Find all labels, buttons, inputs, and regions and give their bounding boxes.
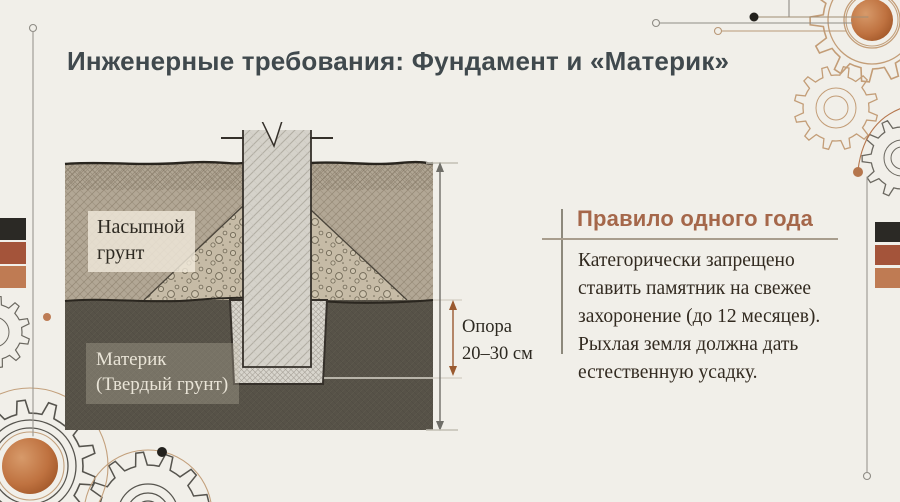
swatch-tan — [0, 266, 26, 288]
swatch-rust — [875, 245, 900, 265]
swatch-tan — [875, 268, 900, 288]
panel-horizontal-rule — [542, 238, 838, 240]
fill-soil-label: Насыпной грунт — [88, 211, 195, 272]
swatch-dark — [875, 222, 900, 242]
rule-body-line: Рыхлая земля должна дать — [578, 331, 820, 359]
bedrock-label: Материк (Твердый грунт) — [86, 343, 239, 404]
circuit-dot — [853, 167, 863, 177]
panel-vertical-rule — [561, 209, 563, 354]
slide-canvas: Инженерные требования: Фундамент и «Мате… — [0, 0, 900, 502]
page-title: Инженерные требования: Фундамент и «Мате… — [67, 46, 729, 77]
rule-body-line: естественную усадку. — [578, 359, 820, 387]
circuit-node — [715, 28, 722, 35]
circuit-dot — [750, 13, 759, 22]
rule-body-line: ставить памятник на свежее — [578, 275, 820, 303]
gear-icon — [862, 118, 900, 198]
bedrock-label-line2: (Твердый грунт) — [96, 372, 228, 397]
circuit-node — [864, 473, 871, 480]
rule-body-text: Категорически запрещено ставить памятник… — [578, 247, 820, 387]
circuit-node — [30, 25, 37, 32]
swatch-rust — [0, 242, 26, 264]
monument-post — [243, 130, 311, 367]
gear-icon — [810, 0, 900, 82]
support-dimension-label: Опора 20–30 см — [462, 314, 533, 368]
swatch-dark — [0, 218, 26, 240]
gear-icon — [86, 452, 209, 502]
copper-hub — [851, 0, 893, 41]
gear-icon — [795, 67, 878, 150]
copper-hub — [2, 438, 58, 494]
rule-heading: Правило одного года — [577, 206, 813, 232]
rule-body-line: захоронение (до 12 месяцев). — [578, 303, 820, 331]
support-dimension-line — [449, 300, 457, 376]
bedrock-label-line1: Материк — [96, 347, 228, 372]
rule-body-line: Категорически запрещено — [578, 247, 820, 275]
circuit-node — [653, 20, 660, 27]
support-label-line1: Опора — [462, 314, 533, 341]
circuit-dot — [43, 313, 51, 321]
palette-swatches-right — [875, 222, 900, 291]
palette-swatches-left — [0, 218, 26, 290]
circuit-dot — [157, 447, 167, 457]
fill-soil-label-line2: грунт — [97, 240, 185, 266]
gear-icon — [0, 296, 29, 368]
fill-soil-label-line1: Насыпной — [97, 214, 185, 240]
support-label-line2: 20–30 см — [462, 341, 533, 368]
